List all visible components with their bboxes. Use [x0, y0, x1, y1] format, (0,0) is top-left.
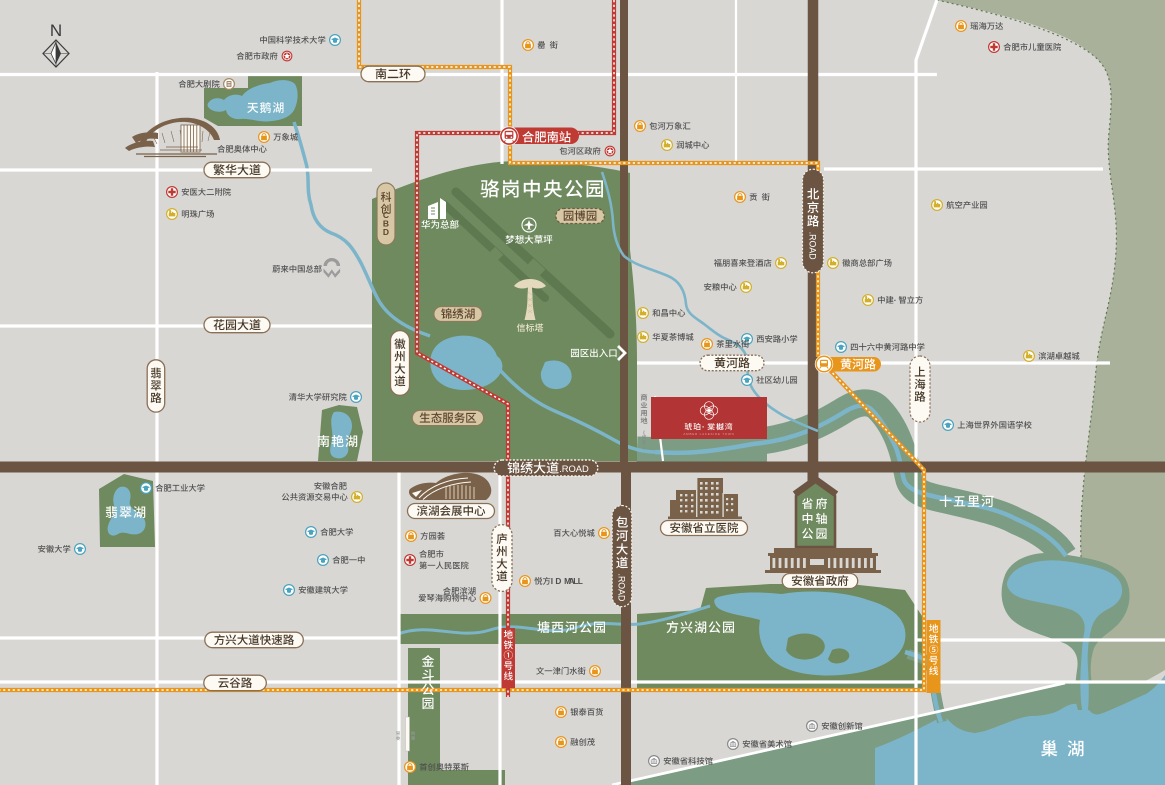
svg-text:.ROAD: .ROAD	[559, 463, 589, 474]
svg-text:IDMALL: IDMALL	[551, 576, 583, 586]
svg-text:.ROAD: .ROAD	[617, 574, 627, 602]
svg-text:CBD: CBD	[383, 210, 389, 237]
svg-text:·: ·	[702, 423, 705, 432]
svg-text:N: N	[50, 21, 62, 40]
svg-text:·: ·	[894, 295, 897, 305]
svg-text:AMBER LAKESIDE TOWN: AMBER LAKESIDE TOWN	[683, 432, 734, 436]
svg-text:.ROAD: .ROAD	[808, 232, 818, 260]
